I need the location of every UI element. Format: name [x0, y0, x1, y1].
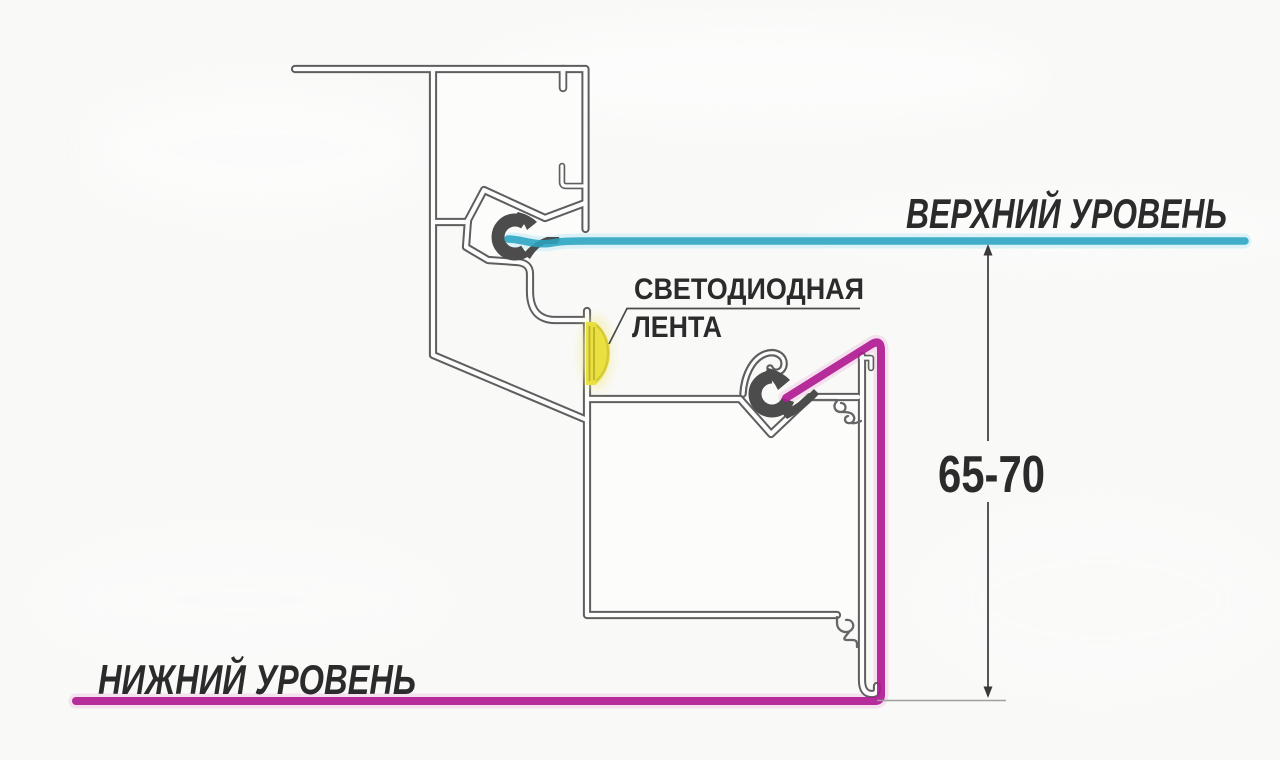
svg-text:СВЕТОДИОДНАЯ: СВЕТОДИОДНАЯ: [634, 273, 864, 306]
svg-text:ЛЕНТА: ЛЕНТА: [632, 311, 722, 344]
svg-text:65-70: 65-70: [938, 446, 1045, 504]
svg-text:ВЕРХНИЙ УРОВЕНЬ: ВЕРХНИЙ УРОВЕНЬ: [906, 188, 1227, 237]
svg-text:НИЖНИЙ УРОВЕНЬ: НИЖНИЙ УРОВЕНЬ: [98, 654, 416, 703]
